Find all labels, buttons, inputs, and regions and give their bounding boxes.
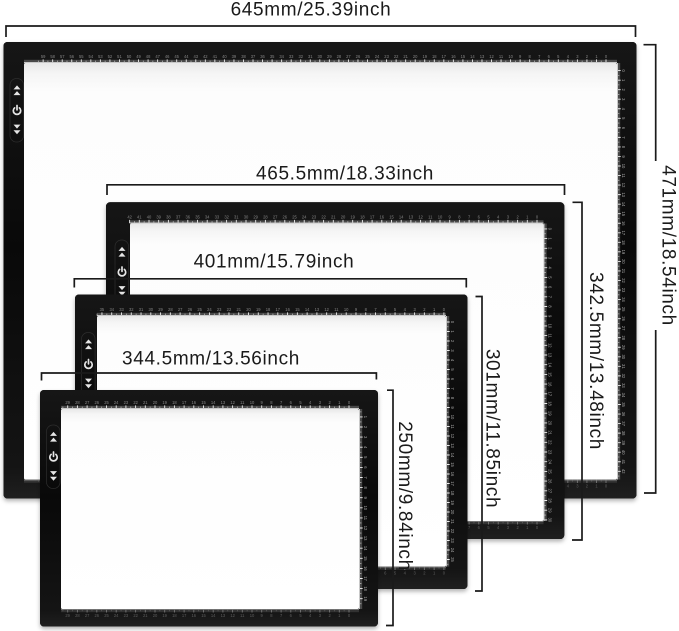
svg-text:44: 44: [184, 54, 189, 59]
svg-text:10: 10: [363, 506, 368, 511]
svg-text:47: 47: [155, 54, 160, 59]
svg-text:54: 54: [89, 54, 94, 59]
svg-text:12: 12: [363, 526, 368, 531]
svg-text:301mm/11.85inch: 301mm/11.85inch: [482, 349, 503, 508]
svg-text:30: 30: [548, 518, 553, 523]
svg-text:22: 22: [227, 307, 232, 312]
svg-text:10: 10: [548, 324, 553, 329]
svg-text:20: 20: [450, 510, 455, 515]
svg-text:11: 11: [499, 54, 504, 59]
svg-text:12: 12: [230, 400, 235, 405]
svg-text:22: 22: [133, 613, 138, 618]
svg-text:11: 11: [334, 307, 339, 312]
svg-text:26: 26: [621, 316, 626, 321]
svg-text:17: 17: [450, 481, 455, 486]
svg-text:58: 58: [50, 54, 55, 59]
svg-text:29: 29: [65, 400, 70, 405]
svg-text:25: 25: [365, 54, 370, 59]
svg-text:30: 30: [244, 214, 249, 219]
svg-text:35: 35: [100, 307, 105, 312]
svg-text:14: 14: [548, 362, 553, 367]
svg-text:28: 28: [263, 214, 268, 219]
svg-text:31: 31: [308, 54, 313, 59]
svg-text:25: 25: [104, 613, 109, 618]
svg-text:31: 31: [621, 364, 626, 369]
svg-text:14: 14: [305, 307, 310, 312]
svg-text:250mm/9.84inch: 250mm/9.84inch: [394, 421, 415, 571]
svg-text:31: 31: [234, 214, 239, 219]
svg-text:40: 40: [147, 214, 152, 219]
svg-text:14: 14: [363, 546, 368, 551]
svg-text:401mm/15.79inch: 401mm/15.79inch: [194, 252, 355, 273]
svg-text:10: 10: [508, 54, 513, 59]
svg-text:27: 27: [85, 613, 90, 618]
svg-text:17: 17: [276, 307, 281, 312]
svg-text:42: 42: [127, 214, 132, 219]
svg-text:344.5mm/13.56inch: 344.5mm/13.56inch: [122, 349, 300, 370]
svg-text:30: 30: [318, 54, 323, 59]
svg-text:22: 22: [621, 278, 626, 283]
svg-text:23: 23: [124, 400, 129, 405]
svg-text:11: 11: [621, 173, 626, 178]
svg-text:19: 19: [162, 400, 167, 405]
svg-text:37: 37: [251, 54, 256, 59]
svg-text:27: 27: [273, 214, 278, 219]
svg-text:33: 33: [119, 307, 124, 312]
svg-text:30: 30: [621, 355, 626, 360]
svg-text:14: 14: [211, 400, 216, 405]
svg-text:24: 24: [114, 613, 119, 618]
svg-text:24: 24: [548, 459, 553, 464]
svg-text:22: 22: [548, 440, 553, 445]
svg-text:19: 19: [363, 596, 368, 601]
svg-text:36: 36: [260, 54, 265, 59]
svg-text:52: 52: [108, 54, 113, 59]
svg-text:11: 11: [240, 400, 245, 405]
svg-text:16: 16: [621, 221, 626, 226]
svg-text:55: 55: [79, 54, 84, 59]
svg-text:18: 18: [432, 54, 437, 59]
svg-text:48: 48: [146, 54, 151, 59]
svg-text:342.5mm/13.48inch: 342.5mm/13.48inch: [585, 272, 606, 450]
svg-text:13: 13: [621, 192, 626, 197]
svg-text:11: 11: [363, 516, 368, 521]
svg-text:16: 16: [548, 382, 553, 387]
svg-text:17: 17: [363, 576, 368, 581]
svg-text:25: 25: [292, 214, 297, 219]
svg-text:645mm/25.39inch: 645mm/25.39inch: [231, 0, 392, 21]
svg-text:32: 32: [129, 307, 134, 312]
svg-text:16: 16: [380, 214, 385, 219]
svg-text:28: 28: [548, 498, 553, 503]
svg-text:10: 10: [344, 307, 349, 312]
svg-text:34: 34: [621, 393, 626, 398]
svg-text:18: 18: [266, 307, 271, 312]
svg-text:15: 15: [295, 307, 300, 312]
svg-text:23: 23: [621, 288, 626, 293]
svg-text:35: 35: [195, 214, 200, 219]
svg-text:21: 21: [236, 307, 241, 312]
svg-text:15: 15: [389, 214, 394, 219]
svg-text:25: 25: [104, 400, 109, 405]
svg-text:59: 59: [41, 54, 46, 59]
svg-text:27: 27: [548, 489, 553, 494]
svg-text:45: 45: [174, 54, 179, 59]
svg-text:40: 40: [621, 450, 626, 455]
svg-text:25: 25: [197, 307, 202, 312]
svg-text:18: 18: [363, 586, 368, 591]
svg-text:27: 27: [621, 326, 626, 331]
svg-text:22: 22: [450, 529, 455, 534]
svg-text:18: 18: [172, 613, 177, 618]
svg-text:471mm/18.54inch: 471mm/18.54inch: [658, 165, 679, 326]
svg-text:15: 15: [363, 556, 368, 561]
svg-text:28: 28: [75, 613, 80, 618]
svg-text:33: 33: [621, 383, 626, 388]
svg-text:28: 28: [75, 400, 80, 405]
svg-text:35: 35: [621, 402, 626, 407]
svg-text:13: 13: [548, 353, 553, 358]
svg-text:20: 20: [413, 54, 418, 59]
svg-text:24: 24: [450, 548, 455, 553]
svg-text:23: 23: [217, 307, 222, 312]
svg-text:53: 53: [98, 54, 103, 59]
svg-text:17: 17: [182, 400, 187, 405]
svg-text:39: 39: [232, 54, 237, 59]
svg-text:10: 10: [250, 400, 255, 405]
svg-text:20: 20: [341, 214, 346, 219]
svg-text:21: 21: [143, 400, 148, 405]
svg-text:12: 12: [324, 307, 329, 312]
svg-text:38: 38: [621, 431, 626, 436]
svg-text:25: 25: [450, 557, 455, 562]
svg-text:29: 29: [158, 307, 163, 312]
svg-text:17: 17: [370, 214, 375, 219]
svg-text:20: 20: [548, 421, 553, 426]
svg-text:27: 27: [85, 400, 90, 405]
svg-text:22: 22: [321, 214, 326, 219]
svg-text:34: 34: [109, 307, 114, 312]
svg-text:24: 24: [114, 400, 119, 405]
svg-text:14: 14: [621, 202, 626, 207]
svg-text:19: 19: [350, 214, 355, 219]
svg-text:16: 16: [363, 566, 368, 571]
svg-text:15: 15: [201, 613, 206, 618]
svg-text:49: 49: [136, 54, 141, 59]
svg-text:36: 36: [186, 214, 191, 219]
svg-text:21: 21: [621, 269, 626, 274]
svg-text:13: 13: [221, 613, 226, 618]
svg-text:19: 19: [548, 411, 553, 416]
svg-text:24: 24: [207, 307, 212, 312]
svg-text:18: 18: [548, 401, 553, 406]
svg-text:38: 38: [166, 214, 171, 219]
svg-text:16: 16: [285, 307, 290, 312]
svg-text:14: 14: [450, 453, 455, 458]
svg-text:24: 24: [302, 214, 307, 219]
svg-text:33: 33: [215, 214, 220, 219]
svg-text:21: 21: [450, 519, 455, 524]
svg-text:19: 19: [162, 613, 167, 618]
svg-text:21: 21: [143, 613, 148, 618]
svg-text:30: 30: [149, 307, 154, 312]
svg-text:13: 13: [315, 307, 320, 312]
svg-text:15: 15: [450, 462, 455, 467]
svg-text:17: 17: [621, 230, 626, 235]
svg-text:26: 26: [95, 400, 100, 405]
svg-text:13: 13: [409, 214, 414, 219]
svg-text:35: 35: [270, 54, 275, 59]
svg-text:10: 10: [250, 613, 255, 618]
svg-text:26: 26: [548, 479, 553, 484]
svg-text:36: 36: [621, 412, 626, 417]
svg-text:18: 18: [360, 214, 365, 219]
svg-text:10: 10: [450, 415, 455, 420]
svg-text:18: 18: [450, 491, 455, 496]
svg-text:20: 20: [621, 259, 626, 264]
svg-text:26: 26: [95, 613, 100, 618]
svg-text:23: 23: [548, 450, 553, 455]
svg-text:14: 14: [399, 214, 404, 219]
svg-text:19: 19: [450, 500, 455, 505]
svg-text:33: 33: [289, 54, 294, 59]
svg-text:22: 22: [133, 400, 138, 405]
svg-text:32: 32: [621, 374, 626, 379]
svg-text:23: 23: [124, 613, 129, 618]
svg-text:20: 20: [153, 613, 158, 618]
svg-text:16: 16: [192, 613, 197, 618]
svg-text:17: 17: [182, 613, 187, 618]
svg-text:26: 26: [283, 214, 288, 219]
svg-text:12: 12: [621, 183, 626, 188]
svg-text:32: 32: [224, 214, 229, 219]
svg-text:21: 21: [548, 430, 553, 435]
svg-text:11: 11: [428, 214, 433, 219]
svg-text:29: 29: [253, 214, 258, 219]
svg-text:11: 11: [240, 613, 245, 618]
svg-text:42: 42: [203, 54, 208, 59]
svg-text:18: 18: [621, 240, 626, 245]
svg-text:28: 28: [168, 307, 173, 312]
svg-text:22: 22: [394, 54, 399, 59]
svg-text:37: 37: [621, 421, 626, 426]
svg-text:21: 21: [331, 214, 336, 219]
svg-text:19: 19: [422, 54, 427, 59]
svg-text:37: 37: [176, 214, 181, 219]
svg-text:27: 27: [178, 307, 183, 312]
svg-text:14: 14: [211, 613, 216, 618]
svg-text:20: 20: [246, 307, 251, 312]
svg-text:32: 32: [298, 54, 303, 59]
svg-text:15: 15: [621, 211, 626, 216]
svg-text:13: 13: [480, 54, 485, 59]
svg-text:18: 18: [172, 400, 177, 405]
svg-text:38: 38: [241, 54, 246, 59]
svg-text:51: 51: [117, 54, 122, 59]
svg-text:15: 15: [461, 54, 466, 59]
svg-text:24: 24: [375, 54, 380, 59]
svg-text:43: 43: [193, 54, 198, 59]
svg-text:23: 23: [312, 214, 317, 219]
svg-text:26: 26: [356, 54, 361, 59]
svg-text:17: 17: [442, 54, 447, 59]
svg-text:14: 14: [470, 54, 475, 59]
svg-text:34: 34: [205, 214, 210, 219]
svg-text:10: 10: [438, 214, 443, 219]
svg-text:29: 29: [327, 54, 332, 59]
svg-text:16: 16: [192, 400, 197, 405]
svg-text:15: 15: [548, 372, 553, 377]
svg-text:28: 28: [337, 54, 342, 59]
svg-text:29: 29: [621, 345, 626, 350]
svg-text:57: 57: [60, 54, 65, 59]
svg-text:41: 41: [621, 459, 626, 464]
svg-text:13: 13: [221, 400, 226, 405]
svg-text:11: 11: [450, 424, 455, 429]
svg-text:21: 21: [403, 54, 408, 59]
svg-text:16: 16: [451, 54, 456, 59]
svg-text:23: 23: [450, 538, 455, 543]
svg-text:40: 40: [222, 54, 227, 59]
svg-text:12: 12: [450, 434, 455, 439]
svg-text:13: 13: [363, 536, 368, 541]
svg-text:29: 29: [65, 613, 70, 618]
svg-text:50: 50: [127, 54, 132, 59]
svg-text:34: 34: [279, 54, 284, 59]
svg-text:42: 42: [621, 469, 626, 474]
svg-text:465.5mm/18.33inch: 465.5mm/18.33inch: [256, 164, 434, 185]
svg-text:41: 41: [137, 214, 142, 219]
svg-text:10: 10: [621, 164, 626, 169]
svg-text:25: 25: [621, 307, 626, 312]
svg-text:11: 11: [548, 333, 553, 338]
svg-text:39: 39: [156, 214, 161, 219]
svg-text:25: 25: [548, 469, 553, 474]
svg-text:15: 15: [201, 400, 206, 405]
svg-text:16: 16: [450, 472, 455, 477]
svg-text:12: 12: [489, 54, 494, 59]
svg-text:27: 27: [346, 54, 351, 59]
svg-text:19: 19: [256, 307, 261, 312]
svg-text:17: 17: [548, 392, 553, 397]
svg-text:12: 12: [230, 613, 235, 618]
svg-text:20: 20: [153, 400, 158, 405]
svg-text:23: 23: [384, 54, 389, 59]
svg-text:56: 56: [69, 54, 74, 59]
svg-text:13: 13: [450, 443, 455, 448]
svg-text:19: 19: [621, 250, 626, 255]
svg-text:24: 24: [621, 297, 626, 302]
svg-text:26: 26: [188, 307, 193, 312]
svg-text:41: 41: [213, 54, 218, 59]
svg-text:29: 29: [548, 508, 553, 513]
svg-text:39: 39: [621, 440, 626, 445]
svg-text:31: 31: [139, 307, 144, 312]
svg-text:46: 46: [165, 54, 170, 59]
svg-text:28: 28: [621, 335, 626, 340]
svg-text:12: 12: [548, 343, 553, 348]
svg-text:12: 12: [418, 214, 423, 219]
